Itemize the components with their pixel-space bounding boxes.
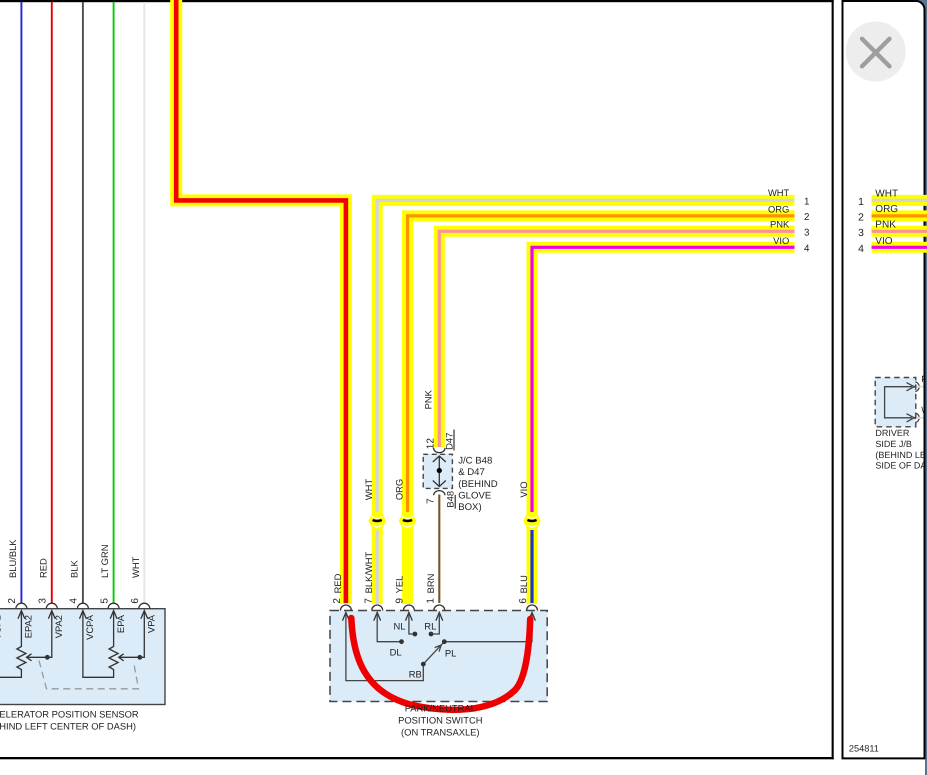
svg-text:DRIVER: DRIVER (875, 428, 910, 438)
svg-text:7: 7 (425, 498, 436, 504)
svg-text:SIDE J/B: SIDE J/B (875, 439, 912, 449)
svg-text:VIO: VIO (518, 481, 529, 497)
svg-text:POSITION SWITCH: POSITION SWITCH (398, 715, 482, 726)
svg-text:LT GRN: LT GRN (99, 544, 110, 578)
svg-text:(BEHIND: (BEHIND (458, 479, 498, 490)
svg-text:WHT: WHT (130, 556, 141, 578)
svg-text:PL: PL (445, 647, 456, 658)
svg-text:WHT: WHT (363, 479, 374, 501)
svg-text:(BEHIND LEFT CENTER OF DASH): (BEHIND LEFT CENTER OF DASH) (0, 720, 136, 731)
svg-text:5: 5 (99, 598, 110, 604)
svg-text:VCPA: VCPA (84, 614, 95, 640)
svg-text:ACCELERATOR POSITION SENSOR: ACCELERATOR POSITION SENSOR (0, 708, 139, 719)
svg-text:4: 4 (804, 244, 810, 255)
svg-text:1: 1 (858, 197, 864, 208)
svg-text:VIO: VIO (875, 236, 892, 247)
svg-text:BLU: BLU (518, 575, 529, 593)
svg-text:RB: RB (409, 668, 422, 679)
svg-text:YEL: YEL (393, 576, 404, 594)
svg-text:RED: RED (332, 573, 343, 593)
svg-text:BLU/BLK: BLU/BLK (7, 539, 18, 578)
svg-text:SIDE OF DASH): SIDE OF DASH) (875, 461, 927, 471)
svg-text:EPA2: EPA2 (23, 615, 34, 638)
svg-text:VPA2: VPA2 (53, 615, 64, 638)
svg-text:ORG: ORG (768, 203, 789, 214)
svg-text:EPA: EPA (115, 614, 126, 633)
svg-text:254811: 254811 (849, 743, 879, 753)
svg-text:BRN: BRN (425, 574, 436, 594)
svg-text:6: 6 (130, 598, 141, 604)
svg-text:2: 2 (332, 598, 343, 604)
svg-text:D47: D47 (443, 433, 454, 450)
svg-text:(BEHIND LEFT: (BEHIND LEFT (875, 450, 927, 460)
svg-text:GLOVE: GLOVE (458, 490, 491, 501)
svg-text:WHT: WHT (875, 188, 898, 199)
svg-text:BLK/WHT: BLK/WHT (363, 551, 374, 593)
svg-text:4: 4 (858, 244, 864, 255)
svg-text:VIO: VIO (773, 235, 789, 246)
svg-text:B48: B48 (445, 491, 456, 508)
svg-text:ORG: ORG (393, 479, 404, 500)
svg-text:3: 3 (38, 598, 49, 604)
svg-text:VCP2: VCP2 (0, 615, 3, 640)
svg-text:J/C B48: J/C B48 (458, 455, 492, 466)
svg-text:2: 2 (804, 212, 809, 223)
svg-text:& D47: & D47 (458, 467, 485, 478)
svg-text:3: 3 (804, 228, 810, 239)
svg-text:PNK: PNK (875, 220, 896, 231)
svg-text:RED: RED (37, 558, 48, 578)
svg-text:PARK/NEUTRAL: PARK/NEUTRAL (405, 703, 476, 714)
svg-text:(ON TRANSAXLE): (ON TRANSAXLE) (401, 727, 480, 738)
svg-text:VPA: VPA (146, 614, 157, 633)
svg-text:BLK: BLK (69, 560, 80, 578)
svg-text:4: 4 (69, 598, 80, 604)
svg-text:2: 2 (858, 212, 864, 223)
svg-text:RL: RL (424, 621, 436, 632)
svg-text:NL: NL (394, 621, 406, 632)
svg-text:3: 3 (858, 228, 864, 239)
svg-text:7: 7 (363, 598, 374, 604)
svg-text:PNK: PNK (423, 389, 434, 409)
svg-text:12: 12 (425, 438, 436, 450)
svg-text:6: 6 (518, 598, 529, 604)
svg-text:WHT: WHT (768, 187, 790, 198)
svg-text:PNK: PNK (770, 218, 790, 229)
svg-text:DL: DL (390, 647, 402, 658)
svg-text:9: 9 (395, 598, 406, 604)
svg-text:1: 1 (804, 197, 809, 208)
svg-text:1: 1 (426, 598, 437, 604)
svg-text:BOX): BOX) (458, 502, 481, 513)
svg-text:2: 2 (7, 598, 18, 604)
svg-text:ORG: ORG (875, 204, 898, 215)
